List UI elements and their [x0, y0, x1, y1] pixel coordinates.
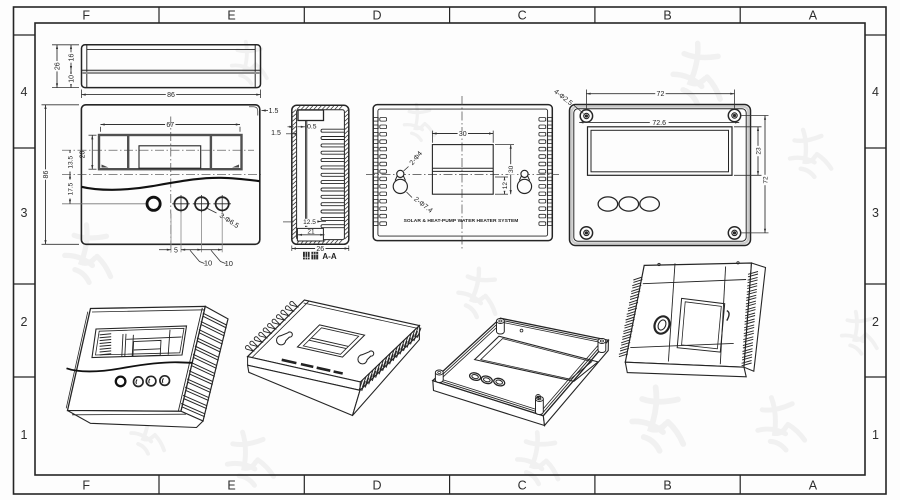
svg-text:1.5: 1.5 — [271, 130, 281, 137]
svg-text:SOLAR & HEAT-PUMP WATER HEATER: SOLAR & HEAT-PUMP WATER HEATER SYSTEM — [404, 218, 519, 224]
svg-text:13.5: 13.5 — [67, 156, 74, 169]
svg-text:4: 4 — [872, 85, 879, 99]
svg-text:B: B — [663, 479, 671, 493]
svg-text:30: 30 — [459, 131, 467, 138]
svg-text:5: 5 — [174, 247, 178, 254]
svg-text:A: A — [809, 9, 818, 23]
svg-text:1: 1 — [872, 428, 879, 442]
svg-text:3: 3 — [21, 206, 28, 220]
svg-text:2: 2 — [872, 315, 879, 329]
svg-text:C: C — [518, 9, 527, 23]
svg-text:72: 72 — [657, 91, 665, 98]
svg-text:D: D — [372, 479, 381, 493]
svg-text:E: E — [227, 479, 235, 493]
svg-text:2: 2 — [21, 315, 28, 329]
svg-text:21: 21 — [307, 229, 315, 236]
svg-text:F: F — [82, 9, 90, 23]
svg-text:10: 10 — [68, 75, 75, 83]
svg-text:C: C — [518, 479, 527, 493]
svg-text:1: 1 — [21, 428, 28, 442]
svg-text:10: 10 — [204, 259, 212, 268]
svg-text:E: E — [227, 9, 235, 23]
svg-text:86: 86 — [43, 171, 50, 179]
svg-text:16: 16 — [68, 54, 75, 62]
svg-text:72: 72 — [762, 176, 769, 184]
svg-text:12.5: 12.5 — [303, 219, 316, 226]
svg-text:23: 23 — [755, 147, 762, 155]
svg-text:67: 67 — [166, 122, 174, 129]
svg-text:F: F — [82, 479, 90, 493]
svg-text:D: D — [372, 9, 381, 23]
svg-text:1.5: 1.5 — [269, 108, 279, 115]
svg-text:4: 4 — [21, 85, 28, 99]
svg-text:3: 3 — [872, 206, 879, 220]
svg-text:12: 12 — [502, 182, 509, 190]
svg-text:86: 86 — [167, 92, 175, 99]
svg-text:30: 30 — [508, 165, 515, 173]
svg-text:10: 10 — [225, 259, 233, 268]
svg-text:0.5: 0.5 — [307, 124, 317, 131]
svg-text:17.5: 17.5 — [67, 182, 74, 195]
svg-text:26: 26 — [54, 62, 61, 70]
svg-text:A: A — [809, 479, 818, 493]
svg-text:A-A: A-A — [322, 252, 336, 261]
svg-text:72.6: 72.6 — [652, 120, 666, 127]
svg-text:B: B — [663, 9, 671, 23]
svg-text:20: 20 — [80, 151, 87, 159]
